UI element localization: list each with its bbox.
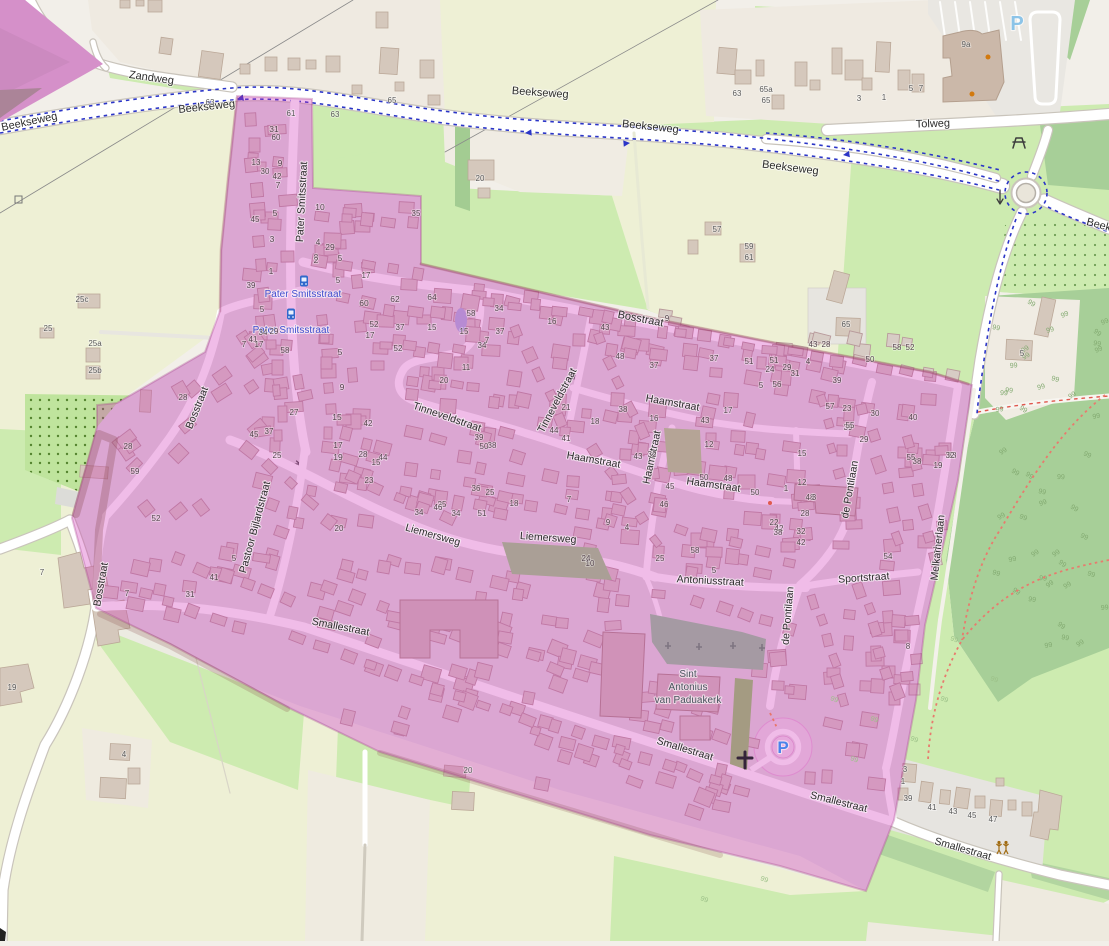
svg-text:Sint: Sint [679, 669, 696, 680]
svg-text:37: 37 [396, 323, 405, 332]
svg-text:43: 43 [949, 807, 958, 816]
svg-text:5: 5 [338, 347, 343, 357]
svg-text:7: 7 [567, 495, 572, 504]
svg-text:15: 15 [372, 458, 381, 467]
svg-text:4: 4 [316, 237, 321, 247]
svg-text:32: 32 [797, 527, 806, 536]
svg-text:60: 60 [272, 133, 281, 142]
svg-text:34: 34 [415, 508, 424, 517]
svg-text:9: 9 [665, 314, 670, 323]
svg-text:34: 34 [452, 509, 461, 518]
svg-text:34: 34 [259, 328, 268, 337]
svg-text:37: 37 [710, 354, 719, 363]
svg-text:63: 63 [331, 110, 340, 119]
svg-text:56: 56 [773, 380, 782, 389]
svg-text:38: 38 [774, 528, 783, 537]
svg-text:29: 29 [270, 327, 279, 336]
svg-text:5: 5 [909, 84, 914, 93]
svg-text:55: 55 [846, 421, 855, 430]
svg-text:4: 4 [122, 750, 127, 759]
svg-text:59: 59 [131, 467, 140, 476]
svg-text:7: 7 [242, 340, 247, 349]
svg-text:28: 28 [359, 450, 368, 459]
svg-text:61: 61 [745, 253, 754, 262]
svg-text:7: 7 [40, 568, 45, 577]
svg-text:99: 99 [1028, 596, 1037, 604]
svg-text:65a: 65a [759, 85, 773, 94]
svg-text:64: 64 [427, 292, 437, 302]
svg-text:51: 51 [770, 356, 779, 365]
svg-text:20: 20 [476, 174, 485, 183]
svg-text:20: 20 [335, 524, 344, 533]
svg-text:45: 45 [666, 482, 675, 491]
svg-text:1: 1 [901, 777, 906, 786]
svg-text:12: 12 [798, 478, 807, 487]
svg-text:39: 39 [475, 433, 484, 442]
svg-text:99: 99 [1044, 642, 1053, 650]
svg-text:46: 46 [434, 503, 443, 512]
svg-text:25: 25 [44, 324, 53, 333]
svg-text:58: 58 [691, 546, 700, 555]
svg-text:Tolweg: Tolweg [916, 117, 951, 130]
svg-text:5: 5 [759, 381, 764, 390]
svg-text:12: 12 [705, 440, 714, 449]
svg-text:34: 34 [495, 304, 504, 313]
svg-text:45: 45 [251, 215, 260, 224]
svg-text:51: 51 [745, 357, 754, 366]
svg-text:17: 17 [724, 406, 733, 415]
svg-text:63: 63 [206, 98, 215, 107]
svg-text:1: 1 [784, 484, 789, 493]
svg-text:17: 17 [366, 331, 375, 340]
svg-text:9: 9 [606, 518, 611, 527]
svg-text:25: 25 [656, 554, 665, 563]
svg-text:41: 41 [928, 803, 937, 812]
svg-text:52: 52 [394, 344, 403, 353]
svg-text:7: 7 [933, 546, 938, 555]
svg-text:35: 35 [412, 209, 421, 218]
svg-text:17: 17 [333, 440, 343, 450]
svg-text:8: 8 [906, 642, 911, 651]
svg-text:40: 40 [909, 413, 918, 422]
svg-text:28: 28 [179, 393, 188, 402]
svg-text:9: 9 [278, 158, 283, 168]
svg-text:42: 42 [797, 538, 806, 547]
svg-text:65: 65 [388, 96, 397, 105]
svg-text:39: 39 [904, 794, 913, 803]
svg-text:16: 16 [650, 414, 659, 423]
svg-text:41: 41 [210, 573, 219, 582]
svg-text:34: 34 [478, 341, 487, 350]
svg-text:29: 29 [325, 242, 335, 252]
svg-text:5: 5 [260, 305, 265, 314]
svg-text:18: 18 [510, 499, 519, 508]
svg-text:13: 13 [252, 158, 261, 167]
svg-text:25c: 25c [76, 295, 89, 304]
svg-text:5: 5 [338, 254, 343, 263]
svg-text:52: 52 [906, 343, 915, 352]
svg-text:4: 4 [625, 523, 630, 532]
svg-text:99: 99 [1057, 474, 1065, 481]
svg-text:42: 42 [364, 419, 373, 428]
svg-text:3: 3 [857, 94, 862, 103]
svg-text:1: 1 [882, 93, 887, 102]
svg-text:P: P [777, 738, 788, 757]
svg-text:19: 19 [8, 683, 17, 692]
svg-text:5: 5 [273, 208, 278, 218]
svg-text:Antonius: Antonius [669, 682, 708, 693]
svg-text:43: 43 [701, 416, 710, 425]
svg-text:25b: 25b [88, 366, 102, 375]
svg-text:99: 99 [1009, 362, 1018, 370]
svg-text:9a: 9a [962, 40, 971, 49]
svg-text:46: 46 [660, 500, 669, 509]
svg-text:99: 99 [995, 406, 1004, 414]
svg-text:19: 19 [333, 452, 343, 462]
svg-text:52: 52 [370, 320, 379, 329]
svg-text:28: 28 [801, 509, 810, 518]
svg-text:23: 23 [365, 476, 374, 485]
svg-text:5: 5 [712, 566, 717, 575]
svg-text:38: 38 [488, 441, 497, 450]
svg-text:7: 7 [919, 84, 924, 93]
svg-text:63: 63 [733, 89, 742, 98]
svg-text:3: 3 [812, 493, 817, 502]
svg-text:21: 21 [562, 403, 571, 412]
svg-text:31: 31 [186, 590, 195, 599]
svg-text:3: 3 [270, 234, 275, 244]
svg-text:45: 45 [250, 430, 259, 439]
svg-text:99: 99 [1101, 604, 1109, 612]
svg-text:57: 57 [713, 225, 722, 234]
svg-text:7: 7 [276, 180, 281, 190]
svg-text:20: 20 [440, 376, 449, 385]
svg-text:25: 25 [486, 488, 495, 497]
svg-text:17: 17 [362, 271, 371, 280]
svg-text:10: 10 [315, 202, 325, 212]
svg-text:15: 15 [428, 323, 437, 332]
svg-text:18: 18 [591, 417, 600, 426]
svg-text:50: 50 [751, 488, 760, 497]
svg-text:17: 17 [255, 340, 264, 349]
svg-text:15: 15 [332, 412, 342, 422]
svg-text:50: 50 [866, 355, 875, 364]
svg-text:99: 99 [1039, 575, 1047, 583]
svg-text:31: 31 [269, 124, 279, 134]
svg-text:44: 44 [550, 426, 559, 435]
svg-text:61: 61 [287, 109, 296, 118]
svg-text:39: 39 [247, 281, 256, 290]
svg-text:59: 59 [745, 242, 754, 251]
svg-text:58: 58 [467, 309, 476, 318]
svg-text:58: 58 [281, 346, 290, 355]
svg-text:32: 32 [648, 450, 657, 459]
svg-text:1: 1 [269, 266, 274, 276]
svg-text:23: 23 [843, 404, 852, 413]
svg-text:5: 5 [336, 276, 341, 285]
svg-text:15: 15 [798, 449, 807, 458]
svg-text:65: 65 [762, 96, 771, 105]
svg-text:55: 55 [907, 453, 916, 462]
svg-text:20: 20 [464, 766, 473, 775]
svg-text:5: 5 [1020, 349, 1025, 358]
svg-text:31: 31 [791, 369, 800, 378]
svg-text:41: 41 [562, 434, 571, 443]
svg-text:32: 32 [946, 451, 955, 460]
svg-text:van Paduakerk: van Paduakerk [655, 695, 723, 706]
svg-text:47: 47 [989, 815, 998, 824]
svg-text:3: 3 [903, 765, 908, 774]
svg-text:99: 99 [1000, 390, 1008, 397]
svg-text:38: 38 [619, 405, 628, 414]
svg-text:11: 11 [462, 363, 471, 372]
svg-text:Pater Smitsstraat: Pater Smitsstraat [265, 289, 342, 300]
svg-text:51: 51 [478, 509, 487, 518]
svg-text:5: 5 [232, 554, 237, 563]
svg-text:99: 99 [992, 324, 1001, 332]
svg-text:4: 4 [806, 357, 811, 366]
svg-text:9: 9 [340, 382, 345, 392]
svg-text:37: 37 [650, 361, 659, 370]
svg-text:45: 45 [968, 811, 977, 820]
svg-text:58: 58 [893, 343, 902, 352]
svg-text:39: 39 [833, 376, 842, 385]
svg-text:19: 19 [934, 461, 943, 470]
svg-text:30: 30 [261, 167, 270, 176]
svg-text:60: 60 [359, 298, 369, 308]
svg-text:2: 2 [314, 255, 319, 265]
svg-text:57: 57 [826, 402, 835, 411]
svg-text:37: 37 [496, 327, 505, 336]
svg-text:P: P [1010, 13, 1023, 35]
svg-text:99: 99 [1061, 634, 1070, 642]
svg-text:36: 36 [472, 484, 481, 493]
svg-text:24: 24 [766, 365, 775, 374]
svg-text:99: 99 [1093, 340, 1102, 348]
svg-text:10: 10 [586, 559, 595, 568]
svg-text:52: 52 [152, 514, 161, 523]
svg-text:16: 16 [548, 317, 557, 326]
svg-text:50: 50 [480, 442, 489, 451]
svg-text:25a: 25a [88, 339, 102, 348]
svg-text:48: 48 [724, 474, 733, 483]
svg-text:43: 43 [601, 323, 610, 332]
svg-text:99: 99 [1008, 556, 1017, 564]
svg-text:28: 28 [124, 442, 133, 451]
svg-text:43: 43 [634, 452, 643, 461]
svg-text:54: 54 [884, 552, 893, 561]
svg-text:37: 37 [265, 427, 274, 436]
svg-text:27: 27 [290, 408, 299, 417]
svg-text:43: 43 [809, 340, 818, 349]
svg-text:15: 15 [460, 327, 469, 336]
svg-text:65: 65 [842, 320, 851, 329]
svg-text:50: 50 [700, 473, 709, 482]
svg-text:48: 48 [616, 352, 625, 361]
svg-text:62: 62 [390, 294, 400, 304]
svg-text:29: 29 [860, 435, 869, 444]
svg-text:7: 7 [125, 589, 130, 598]
svg-text:25: 25 [273, 451, 282, 460]
svg-text:30: 30 [871, 409, 880, 418]
svg-text:28: 28 [822, 340, 831, 349]
